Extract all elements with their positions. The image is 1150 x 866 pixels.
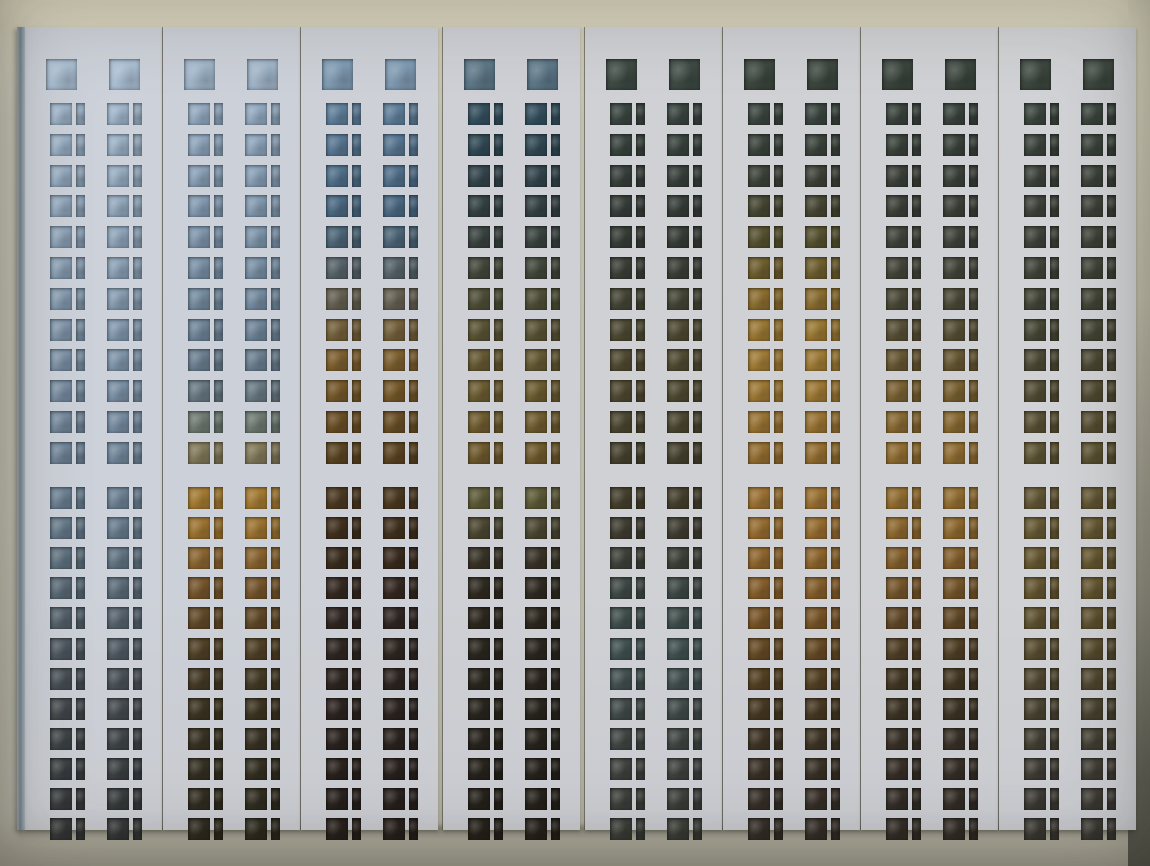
film-frame-window: [383, 319, 405, 341]
film-frame-window: [943, 638, 965, 660]
film-frame-bar: [76, 288, 85, 310]
film-frame-bar: [352, 349, 361, 371]
film-frame-bar: [1050, 442, 1059, 464]
film-frame-bar: [271, 226, 280, 248]
film-frame-bar: [409, 165, 418, 187]
film-frame-bar: [693, 349, 702, 371]
film-frame-bar: [693, 380, 702, 402]
film-frame-bar: [271, 698, 280, 720]
film-frame-bar: [214, 226, 223, 248]
film-frame-bar: [133, 607, 142, 629]
film-frame-bar: [76, 547, 85, 569]
film-frame-window: [525, 818, 547, 840]
film-frame-window: [468, 607, 490, 629]
film-frame-bar: [1107, 226, 1116, 248]
strip-left-bevel-edge: [17, 27, 25, 830]
film-frame-bar: [133, 319, 142, 341]
film-frame-bar: [494, 698, 503, 720]
film-frame-window: [667, 349, 689, 371]
film-frame-bar: [133, 226, 142, 248]
film-frame-window: [525, 758, 547, 780]
film-frame-bar: [774, 577, 783, 599]
film-frame-window: [468, 517, 490, 539]
film-frame-window: [1081, 788, 1103, 810]
film-frame-bar: [912, 165, 921, 187]
film-frame-window: [50, 698, 72, 720]
film-frame-bar: [693, 788, 702, 810]
film-frame-window: [326, 411, 348, 433]
film-frame-window: [468, 319, 490, 341]
film-frame-bar: [969, 638, 978, 660]
film-frame-bar: [494, 818, 503, 840]
film-frame-window: [886, 411, 908, 433]
film-frame-window: [667, 487, 689, 509]
film-frame-window: [748, 788, 770, 810]
film-frame-bar: [831, 195, 840, 217]
film-frame-bar: [494, 577, 503, 599]
film-frame-bar: [774, 758, 783, 780]
film-frame-bar: [214, 165, 223, 187]
film-frame-bar: [133, 728, 142, 750]
film-frame-window: [610, 818, 632, 840]
film-frame-bar: [271, 195, 280, 217]
film-frame-window: [468, 257, 490, 279]
film-frame-window: [383, 134, 405, 156]
film-frame-window: [805, 288, 827, 310]
film-frame-window: [188, 818, 210, 840]
film-frame-window: [50, 668, 72, 690]
film-frame-bar: [76, 411, 85, 433]
film-frame-window: [748, 288, 770, 310]
film-frame-bar: [409, 288, 418, 310]
film-frame-window: [886, 607, 908, 629]
film-frame-bar: [1050, 577, 1059, 599]
film-frame-bar: [693, 134, 702, 156]
film-frame-window: [667, 442, 689, 464]
film-frame-window: [1024, 442, 1046, 464]
film-frame-window: [383, 788, 405, 810]
film-frame-window: [1024, 698, 1046, 720]
film-frame-bar: [774, 411, 783, 433]
film-frame-bar: [352, 758, 361, 780]
header-frame-window: [669, 59, 700, 90]
film-frame-window: [188, 487, 210, 509]
film-frame-window: [383, 288, 405, 310]
film-frame-window: [50, 728, 72, 750]
film-frame-window: [245, 226, 267, 248]
film-frame-window: [748, 134, 770, 156]
film-frame-window: [326, 319, 348, 341]
film-frame-bar: [551, 638, 560, 660]
film-frame-bar: [969, 788, 978, 810]
film-frame-window: [886, 257, 908, 279]
film-frame-window: [245, 257, 267, 279]
film-frame-window: [383, 103, 405, 125]
film-frame-window: [50, 517, 72, 539]
film-frame-bar: [774, 165, 783, 187]
film-frame-window: [188, 577, 210, 599]
film-frame-window: [468, 134, 490, 156]
film-frame-window: [525, 668, 547, 690]
film-frame-window: [748, 698, 770, 720]
film-frame-window: [886, 319, 908, 341]
film-frame-bar: [636, 698, 645, 720]
film-strip-5: [585, 27, 722, 830]
film-frame-window: [943, 698, 965, 720]
film-frame-bar: [912, 728, 921, 750]
film-frame-bar: [831, 380, 840, 402]
film-frame-window: [805, 728, 827, 750]
film-frame-bar: [352, 728, 361, 750]
film-frame-window: [107, 638, 129, 660]
film-frame-bar: [693, 607, 702, 629]
film-frame-bar: [76, 668, 85, 690]
film-frame-bar: [831, 349, 840, 371]
film-frame-bar: [912, 442, 921, 464]
film-frame-bar: [352, 319, 361, 341]
header-frame-window: [945, 59, 976, 90]
film-frame-window: [943, 728, 965, 750]
film-frame-bar: [636, 818, 645, 840]
film-frame-window: [188, 788, 210, 810]
film-frame-window: [610, 380, 632, 402]
film-frame-window: [383, 380, 405, 402]
film-frame-bar: [1107, 288, 1116, 310]
film-frame-bar: [76, 487, 85, 509]
film-frame-bar: [969, 698, 978, 720]
film-frame-bar: [133, 195, 142, 217]
film-frame-window: [383, 257, 405, 279]
film-frame-window: [245, 165, 267, 187]
film-frame-window: [525, 728, 547, 750]
film-frame-bar: [133, 380, 142, 402]
film-frame-bar: [1050, 226, 1059, 248]
film-frame-window: [748, 165, 770, 187]
film-frame-bar: [76, 818, 85, 840]
film-frame-window: [1081, 638, 1103, 660]
film-frame-window: [188, 319, 210, 341]
film-frame-window: [50, 758, 72, 780]
header-frame-window: [1020, 59, 1051, 90]
film-frame-bar: [693, 195, 702, 217]
film-frame-bar: [636, 195, 645, 217]
film-frame-bar: [494, 319, 503, 341]
film-frame-bar: [693, 638, 702, 660]
film-frame-bar: [1107, 165, 1116, 187]
film-frame-bar: [774, 380, 783, 402]
film-frame-bar: [551, 411, 560, 433]
film-frame-bar: [551, 668, 560, 690]
film-frame-window: [610, 607, 632, 629]
film-frame-window: [188, 349, 210, 371]
film-frame-window: [610, 349, 632, 371]
film-frame-window: [667, 758, 689, 780]
film-frame-bar: [352, 547, 361, 569]
film-frame-window: [188, 411, 210, 433]
film-frame-bar: [831, 517, 840, 539]
film-frame-window: [805, 818, 827, 840]
film-frame-bar: [969, 380, 978, 402]
film-frame-window: [748, 411, 770, 433]
film-frame-window: [1024, 638, 1046, 660]
film-frame-bar: [352, 288, 361, 310]
film-frame-window: [886, 728, 908, 750]
film-frame-bar: [969, 728, 978, 750]
film-frame-bar: [76, 607, 85, 629]
film-frame-bar: [352, 487, 361, 509]
film-frame-bar: [912, 257, 921, 279]
film-frame-bar: [969, 442, 978, 464]
film-frame-window: [1081, 547, 1103, 569]
film-frame-bar: [133, 134, 142, 156]
film-frame-bar: [831, 638, 840, 660]
film-frame-bar: [693, 547, 702, 569]
film-frame-window: [886, 103, 908, 125]
film-frame-bar: [912, 638, 921, 660]
film-frame-window: [805, 698, 827, 720]
film-frame-bar: [774, 288, 783, 310]
film-frame-window: [383, 165, 405, 187]
film-frame-bar: [214, 442, 223, 464]
film-frame-bar: [352, 226, 361, 248]
film-frame-window: [943, 411, 965, 433]
film-frame-window: [468, 411, 490, 433]
film-frame-bar: [636, 442, 645, 464]
film-frame-window: [107, 195, 129, 217]
film-frame-window: [525, 349, 547, 371]
film-frame-bar: [494, 257, 503, 279]
film-frame-bar: [76, 698, 85, 720]
film-frame-window: [943, 668, 965, 690]
film-frame-bar: [1050, 638, 1059, 660]
film-frame-window: [610, 411, 632, 433]
film-frame-window: [943, 103, 965, 125]
film-frame-window: [943, 487, 965, 509]
film-frame-window: [805, 607, 827, 629]
film-frame-window: [805, 758, 827, 780]
film-frame-bar: [271, 103, 280, 125]
film-frame-window: [943, 195, 965, 217]
film-frame-window: [188, 226, 210, 248]
film-frame-bar: [1107, 487, 1116, 509]
film-frame-window: [886, 487, 908, 509]
film-frame-window: [1081, 487, 1103, 509]
film-frame-bar: [133, 103, 142, 125]
film-frame-bar: [912, 134, 921, 156]
film-frame-bar: [636, 134, 645, 156]
film-frame-bar: [409, 758, 418, 780]
film-frame-bar: [693, 698, 702, 720]
film-frame-window: [468, 195, 490, 217]
film-frame-bar: [693, 411, 702, 433]
film-frame-bar: [76, 788, 85, 810]
film-frame-window: [667, 134, 689, 156]
film-frame-bar: [494, 728, 503, 750]
film-frame-bar: [551, 442, 560, 464]
film-frame-bar: [831, 547, 840, 569]
film-frame-window: [1024, 134, 1046, 156]
film-frame-window: [667, 103, 689, 125]
film-frame-window: [326, 487, 348, 509]
film-frame-bar: [409, 638, 418, 660]
film-frame-bar: [636, 319, 645, 341]
film-frame-window: [50, 103, 72, 125]
film-frame-bar: [271, 442, 280, 464]
film-frame-bar: [409, 698, 418, 720]
film-frame-window: [748, 103, 770, 125]
film-frame-bar: [1050, 728, 1059, 750]
film-frame-bar: [214, 380, 223, 402]
film-frame-window: [525, 517, 547, 539]
film-frame-window: [748, 257, 770, 279]
film-frame-window: [50, 442, 72, 464]
film-frame-window: [1024, 257, 1046, 279]
film-frame-window: [748, 668, 770, 690]
film-frame-window: [1024, 349, 1046, 371]
film-frame-window: [525, 547, 547, 569]
film-strip-7: [861, 27, 998, 830]
film-frame-window: [610, 728, 632, 750]
film-frame-bar: [551, 698, 560, 720]
film-frame-bar: [912, 607, 921, 629]
film-frame-window: [188, 195, 210, 217]
film-frame-bar: [494, 103, 503, 125]
film-frame-bar: [831, 319, 840, 341]
film-frame-window: [667, 818, 689, 840]
film-frame-bar: [409, 380, 418, 402]
film-frame-bar: [551, 818, 560, 840]
film-frame-window: [1081, 411, 1103, 433]
film-frame-bar: [494, 349, 503, 371]
film-frame-window: [886, 195, 908, 217]
film-frame-bar: [831, 818, 840, 840]
film-frame-window: [468, 442, 490, 464]
film-frame-window: [943, 319, 965, 341]
film-frame-window: [667, 319, 689, 341]
film-frame-bar: [494, 442, 503, 464]
film-frame-window: [326, 668, 348, 690]
film-frame-window: [326, 818, 348, 840]
film-frame-window: [326, 517, 348, 539]
film-frame-window: [468, 547, 490, 569]
film-frame-bar: [76, 195, 85, 217]
film-frame-bar: [774, 607, 783, 629]
film-frame-bar: [214, 818, 223, 840]
film-frame-bar: [831, 728, 840, 750]
film-frame-window: [188, 758, 210, 780]
film-frame-bar: [1107, 547, 1116, 569]
film-frame-window: [188, 728, 210, 750]
film-frame-window: [610, 257, 632, 279]
film-frame-window: [525, 788, 547, 810]
film-frame-bar: [76, 728, 85, 750]
film-frame-window: [943, 226, 965, 248]
film-frame-bar: [551, 380, 560, 402]
film-frame-bar: [214, 728, 223, 750]
film-frame-window: [107, 103, 129, 125]
film-frame-bar: [831, 577, 840, 599]
film-frame-window: [1081, 380, 1103, 402]
film-frame-bar: [133, 257, 142, 279]
film-frame-window: [748, 195, 770, 217]
film-frame-bar: [352, 380, 361, 402]
film-frame-window: [805, 134, 827, 156]
film-frame-window: [383, 226, 405, 248]
film-frame-bar: [76, 442, 85, 464]
film-frame-window: [107, 442, 129, 464]
film-frame-window: [326, 134, 348, 156]
header-frame-window: [1083, 59, 1114, 90]
film-frame-bar: [409, 195, 418, 217]
film-frame-window: [1024, 319, 1046, 341]
film-frame-bar: [912, 788, 921, 810]
film-frame-bar: [214, 103, 223, 125]
film-frame-window: [748, 380, 770, 402]
film-frame-window: [245, 487, 267, 509]
film-frame-bar: [76, 319, 85, 341]
film-frame-bar: [969, 547, 978, 569]
film-frame-bar: [76, 638, 85, 660]
film-frame-bar: [636, 288, 645, 310]
film-frame-window: [107, 165, 129, 187]
film-frame-bar: [636, 487, 645, 509]
film-frame-bar: [693, 487, 702, 509]
film-frame-window: [1024, 288, 1046, 310]
film-frame-window: [383, 698, 405, 720]
film-frame-bar: [494, 758, 503, 780]
film-frame-bar: [1107, 517, 1116, 539]
film-frame-bar: [214, 607, 223, 629]
film-frame-bar: [912, 349, 921, 371]
film-frame-window: [1081, 668, 1103, 690]
film-frame-window: [107, 788, 129, 810]
film-frame-bar: [214, 134, 223, 156]
film-frame-bar: [831, 257, 840, 279]
film-frame-bar: [831, 758, 840, 780]
film-frame-window: [610, 698, 632, 720]
film-frame-bar: [409, 103, 418, 125]
film-frame-window: [805, 103, 827, 125]
film-frame-bar: [133, 349, 142, 371]
film-frame-window: [107, 257, 129, 279]
film-frame-window: [107, 698, 129, 720]
film-frame-bar: [76, 349, 85, 371]
film-frame-window: [188, 607, 210, 629]
film-frame-window: [326, 788, 348, 810]
film-frame-window: [383, 487, 405, 509]
film-frame-window: [245, 758, 267, 780]
film-frame-window: [326, 165, 348, 187]
film-frame-bar: [409, 134, 418, 156]
header-frame-window: [744, 59, 775, 90]
film-frame-bar: [494, 517, 503, 539]
film-frame-bar: [912, 668, 921, 690]
film-frame-bar: [551, 487, 560, 509]
header-frame-window: [882, 59, 913, 90]
film-frame-window: [1024, 195, 1046, 217]
film-frame-window: [1024, 165, 1046, 187]
film-frame-bar: [271, 818, 280, 840]
film-frame-window: [326, 349, 348, 371]
film-frame-bar: [912, 698, 921, 720]
film-frame-window: [805, 517, 827, 539]
film-frame-window: [326, 728, 348, 750]
film-frame-bar: [969, 818, 978, 840]
film-frame-window: [943, 349, 965, 371]
film-strip-8: [999, 27, 1136, 830]
film-frame-window: [667, 698, 689, 720]
film-frame-window: [107, 319, 129, 341]
